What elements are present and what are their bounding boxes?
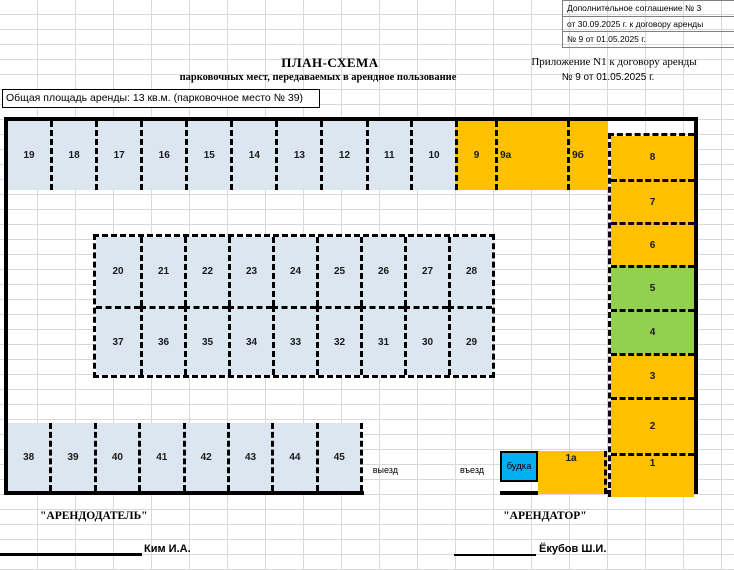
agreement-note-line-3: № 9 от 01.05.2025 г.: [563, 32, 734, 48]
parking-spot-26: 26: [360, 237, 404, 306]
parking-row-bottom: 3839404142434445: [8, 423, 363, 491]
parking-spot-1: 1: [611, 453, 694, 497]
tenant-title: "АРЕНДАТОР": [470, 510, 620, 522]
parking-spot-2: 2: [611, 397, 694, 453]
parking-spot-9: 9: [455, 121, 495, 190]
agreement-note-block: Дополнительное соглашение № 3 от 30.09.2…: [562, 0, 734, 48]
parking-spot-22: 22: [184, 237, 228, 306]
parking-spot-27: 27: [404, 237, 448, 306]
guard-booth: будка: [500, 451, 538, 482]
parking-spot-36: 36: [140, 306, 184, 375]
parking-spot-11: 11: [366, 121, 411, 190]
parking-spot-28: 28: [448, 237, 492, 306]
parking-spot-21: 21: [140, 237, 184, 306]
parking-spot-10: 10: [410, 121, 455, 190]
parking-spot-34: 34: [228, 306, 272, 375]
parking-spot-5: 5: [611, 265, 694, 309]
parking-spot-44: 44: [271, 423, 315, 491]
parking-spot-3: 3: [611, 353, 694, 397]
agreement-note-line-1: Дополнительное соглашение № 3: [563, 1, 734, 17]
parking-spot-38: 38: [8, 423, 49, 491]
page-subtitle: парковочных мест, передаваемых в арендно…: [168, 72, 468, 83]
parking-spot-35: 35: [184, 306, 228, 375]
tenant-name: Ёкубов Ш.И.: [539, 543, 606, 555]
parking-column-right: 87654321: [608, 133, 694, 497]
parking-spot-14: 14: [230, 121, 275, 190]
rental-area-note: Общая площадь аренды: 13 кв.м. (парковоч…: [2, 89, 320, 108]
landlord-name: Ким И.А.: [144, 543, 191, 555]
spreadsheet-plan-sheet: Дополнительное соглашение № 3 от 30.09.2…: [0, 0, 734, 570]
appendix-reference-line-1: Приложение N1 к договору аренды: [514, 56, 714, 68]
agreement-note-line-2: от 30.09.2025 г. к договору аренды: [563, 17, 734, 33]
tenant-signature-line: [454, 554, 536, 556]
appendix-reference-line-2: № 9 от 01.05.2025 г.: [533, 72, 683, 83]
parking-spot-45: 45: [316, 423, 360, 491]
parking-spot-6: 6: [611, 222, 694, 265]
parking-spot-7: 7: [611, 179, 694, 222]
parking-spot-42: 42: [183, 423, 227, 491]
parking-spot-23: 23: [228, 237, 272, 306]
parking-spot-20: 20: [96, 237, 140, 306]
parking-spot-31: 31: [360, 306, 404, 375]
parking-spot-33: 33: [272, 306, 316, 375]
parking-spot-1a: 1а: [538, 451, 607, 494]
entrance-label: въезд: [456, 465, 488, 475]
landlord-signature-line: [0, 553, 142, 556]
parking-spot-19: 19: [8, 121, 50, 190]
parking-spot-29: 29: [448, 306, 492, 375]
parking-spot-40: 40: [94, 423, 138, 491]
parking-spot-4: 4: [611, 309, 694, 353]
parking-block-middle: 202122232425262728373635343332313029: [93, 234, 495, 378]
parking-spot-9б: 9б: [567, 121, 608, 190]
landlord-title: "АРЕНДОДАТЕЛЬ": [40, 510, 190, 522]
parking-spot-18: 18: [50, 121, 95, 190]
lot-border-booth-bottom: [500, 491, 538, 495]
parking-spot-41: 41: [138, 423, 182, 491]
parking-spot-43: 43: [227, 423, 271, 491]
parking-row-top: 1918171615141312111099а9б: [8, 121, 608, 190]
parking-spot-17: 17: [95, 121, 140, 190]
parking-spot-30: 30: [404, 306, 448, 375]
parking-spot-24: 24: [272, 237, 316, 306]
parking-spot-25: 25: [316, 237, 360, 306]
parking-spot-8: 8: [611, 136, 694, 179]
parking-spot-37: 37: [96, 306, 140, 375]
parking-spot-13: 13: [275, 121, 320, 190]
exit-label: выезд: [362, 465, 398, 475]
parking-spot-12: 12: [320, 121, 365, 190]
page-title: ПЛАН-СХЕМА: [180, 55, 480, 71]
parking-spot-32: 32: [316, 306, 360, 375]
parking-spot-39: 39: [49, 423, 93, 491]
parking-spot-16: 16: [140, 121, 185, 190]
parking-spot-9а: 9а: [495, 121, 567, 190]
lot-border-right: [694, 117, 698, 494]
lot-border-bottom-left: [4, 491, 364, 495]
parking-spot-15: 15: [185, 121, 230, 190]
